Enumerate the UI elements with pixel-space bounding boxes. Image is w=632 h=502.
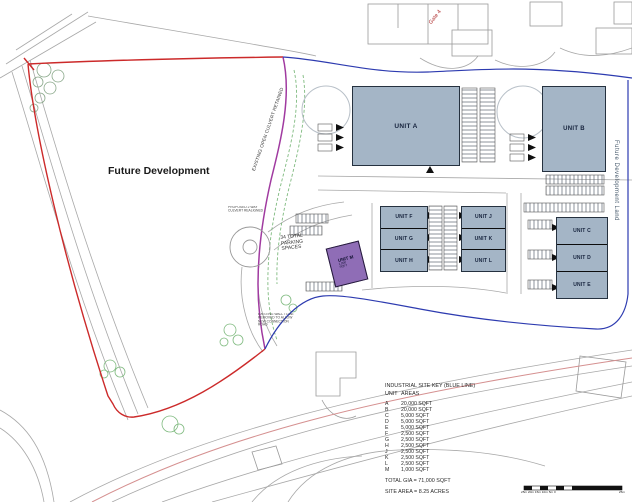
site-plan-canvas: UNIT A UNIT B UNIT F UNIT G UNIT H UNIT … bbox=[0, 0, 632, 502]
unit-e: UNIT E bbox=[557, 271, 607, 298]
unit-f: UNIT F bbox=[381, 207, 427, 228]
scale-bar-labels: 25m 20m 15m 10m 5m 0 25m bbox=[521, 491, 625, 494]
unit-e-label: UNIT E bbox=[573, 282, 591, 288]
unit-b-label: UNIT B bbox=[563, 126, 585, 132]
scale-bar bbox=[524, 486, 622, 490]
roundabout bbox=[230, 227, 270, 267]
future-development-land-label: Future Development Land bbox=[613, 140, 619, 221]
unit-k: UNIT K bbox=[462, 228, 505, 250]
unit-k-label: UNIT K bbox=[475, 236, 493, 242]
unit-b: UNIT B bbox=[542, 86, 606, 172]
terrace-jkl: UNIT J UNIT K UNIT L bbox=[461, 206, 506, 272]
unit-c-label: UNIT C bbox=[573, 228, 591, 234]
unit-g-label: UNIT G bbox=[395, 236, 413, 242]
unit-a-label: UNIT A bbox=[394, 123, 417, 130]
wall-removal-note: EXISTING WALL TO BE REMOVED TO ALLOW NEW… bbox=[258, 313, 294, 327]
legend-rows: A20,000 SQFTB20,000 SQFTC5,000 SQFTD5,00… bbox=[385, 401, 475, 473]
unit-j: UNIT J bbox=[462, 207, 505, 228]
legend-row: M1,000 SQFT bbox=[385, 467, 475, 473]
unit-l: UNIT L bbox=[462, 249, 505, 271]
red-boundary bbox=[24, 57, 283, 417]
site-linework bbox=[0, 0, 632, 502]
site-key-legend: INDUSTRIAL SITE KEY (BLUE LINE) UNIT ARE… bbox=[385, 383, 475, 495]
unit-a: UNIT A bbox=[352, 86, 460, 166]
scale-bar-left-labels: 25m 20m 15m 10m 5m 0 bbox=[521, 491, 556, 494]
terrace-cde: UNIT C UNIT D UNIT E bbox=[556, 217, 608, 299]
unit-h: UNIT H bbox=[381, 249, 427, 271]
terrace-fgh: UNIT F UNIT G UNIT H bbox=[380, 206, 428, 272]
legend-total: TOTAL GIA = 71,000 SQFT bbox=[385, 478, 475, 484]
legend-col-areas: AREAS bbox=[401, 391, 419, 397]
unit-l-label: UNIT L bbox=[475, 258, 492, 264]
unit-h-label: UNIT H bbox=[395, 258, 413, 264]
tree-cluster-gray bbox=[30, 63, 64, 112]
unit-j-label: UNIT J bbox=[475, 214, 492, 220]
scale-bar-right-label: 25m bbox=[619, 491, 625, 494]
unit-c: UNIT C bbox=[557, 218, 607, 244]
legend-site-area: SITE AREA = 8.25 ACRES bbox=[385, 489, 475, 495]
legend-col-unit: UNIT bbox=[385, 391, 401, 397]
legend-header: UNIT AREAS bbox=[385, 391, 475, 397]
legend-title: INDUSTRIAL SITE KEY (BLUE LINE) bbox=[385, 383, 475, 389]
future-development-label: Future Development bbox=[108, 165, 210, 177]
culvert-line bbox=[258, 57, 286, 349]
unit-d-label: UNIT D bbox=[573, 255, 591, 261]
culvert-realigned-note: PROPOSED 2 WAY CULVERT REALIGNED bbox=[228, 206, 263, 213]
unit-f-label: UNIT F bbox=[395, 214, 412, 220]
unit-d: UNIT D bbox=[557, 244, 607, 271]
unit-g: UNIT G bbox=[381, 228, 427, 250]
road-centerline-pink bbox=[92, 358, 632, 502]
